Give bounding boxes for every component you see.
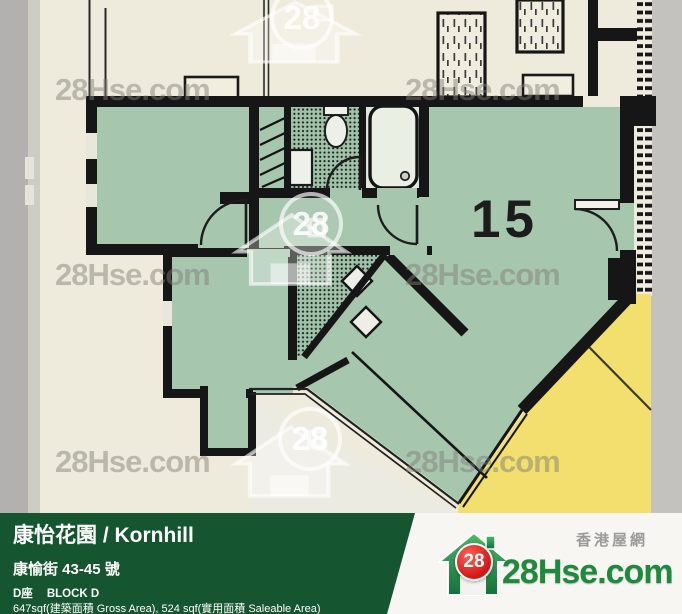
bathtub-drain-icon	[401, 172, 409, 180]
block-info-cn: D座	[13, 588, 33, 600]
estate-title: 康怡花園 / Kornhill	[13, 519, 194, 549]
street-address: 康愉街 43-45 號	[13, 558, 120, 579]
block-info-en: BLOCK D	[47, 588, 99, 600]
sink-icon	[290, 150, 312, 185]
area-info: 647sqf(建築面積 Gross Area), 524 sqf(實用面積 Sa…	[13, 600, 321, 614]
party-wall-hatch	[637, 0, 652, 296]
bathtub-room	[366, 102, 421, 192]
unit-number-label: 15	[471, 193, 538, 246]
nook-fill	[204, 390, 252, 452]
bedroom-1-fill	[90, 100, 255, 250]
right-margin-strip	[651, 0, 682, 513]
open-door-leaf	[575, 200, 619, 209]
brand-site-name: 28Hse.com	[502, 553, 673, 592]
toilet-bowl-icon	[325, 115, 347, 147]
brand-site-name-cn: 香港屋網	[576, 529, 648, 550]
brand-number: 28	[463, 551, 484, 573]
floor-plan-graphic	[0, 0, 682, 513]
left-margin-strip	[0, 0, 40, 513]
brand-28-circle: 28	[455, 543, 493, 581]
floorplan-listing-image: 28Hse.com 28Hse.com 28Hse.com 28Hse.com …	[0, 0, 682, 614]
brand-logo[interactable]: 28 香港屋網 28Hse.com	[432, 524, 672, 609]
block-info: D座BLOCK D	[13, 585, 113, 601]
